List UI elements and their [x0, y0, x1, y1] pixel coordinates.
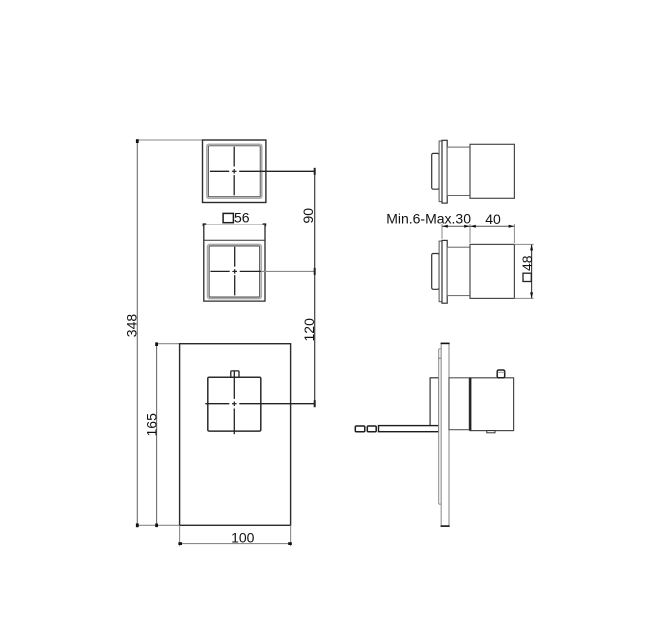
- svg-text:48: 48: [519, 255, 535, 271]
- svg-text:165: 165: [144, 413, 160, 437]
- svg-text:100: 100: [231, 529, 255, 545]
- svg-text:Min.6-Max.30: Min.6-Max.30: [386, 211, 471, 227]
- svg-text:56: 56: [234, 210, 250, 226]
- svg-text:90: 90: [300, 208, 316, 224]
- svg-text:348: 348: [124, 314, 140, 338]
- svg-text:40: 40: [485, 211, 501, 227]
- svg-text:120: 120: [301, 318, 317, 342]
